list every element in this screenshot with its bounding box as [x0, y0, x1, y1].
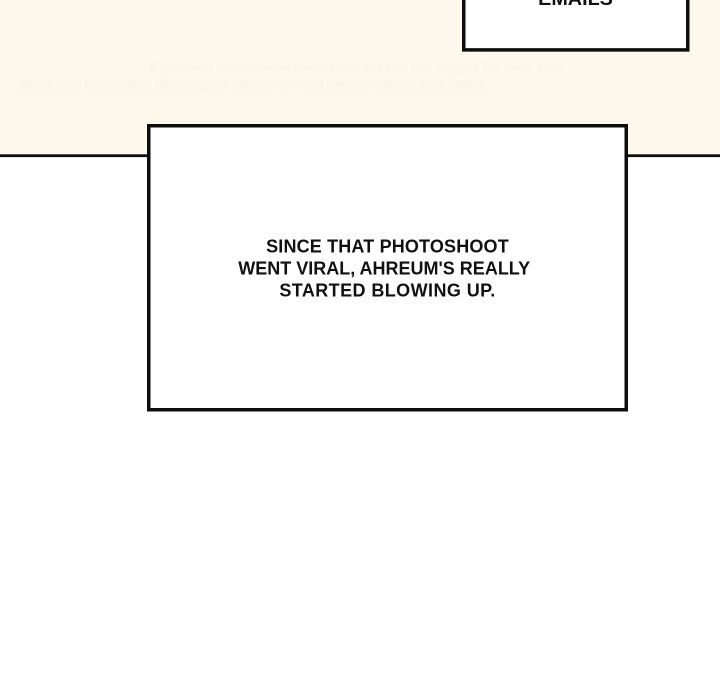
- svg-text:WENT VIRAL, AHREUM'S REALLY: WENT VIRAL, AHREUM'S REALLY: [238, 258, 530, 278]
- svg-text:SINCE THAT PHOTOSHOOT: SINCE THAT PHOTOSHOOT: [266, 237, 509, 257]
- svg-text:If you want to read more comic: If you want to read more comics visit ou…: [150, 60, 564, 75]
- svg-text:STARTED BLOWING UP.: STARTED BLOWING UP.: [279, 280, 495, 300]
- svg-text:thank you for reading this cha: thank you for reading this chapter pleas…: [20, 77, 485, 93]
- svg-text:EMAILS: EMAILS: [538, 0, 613, 10]
